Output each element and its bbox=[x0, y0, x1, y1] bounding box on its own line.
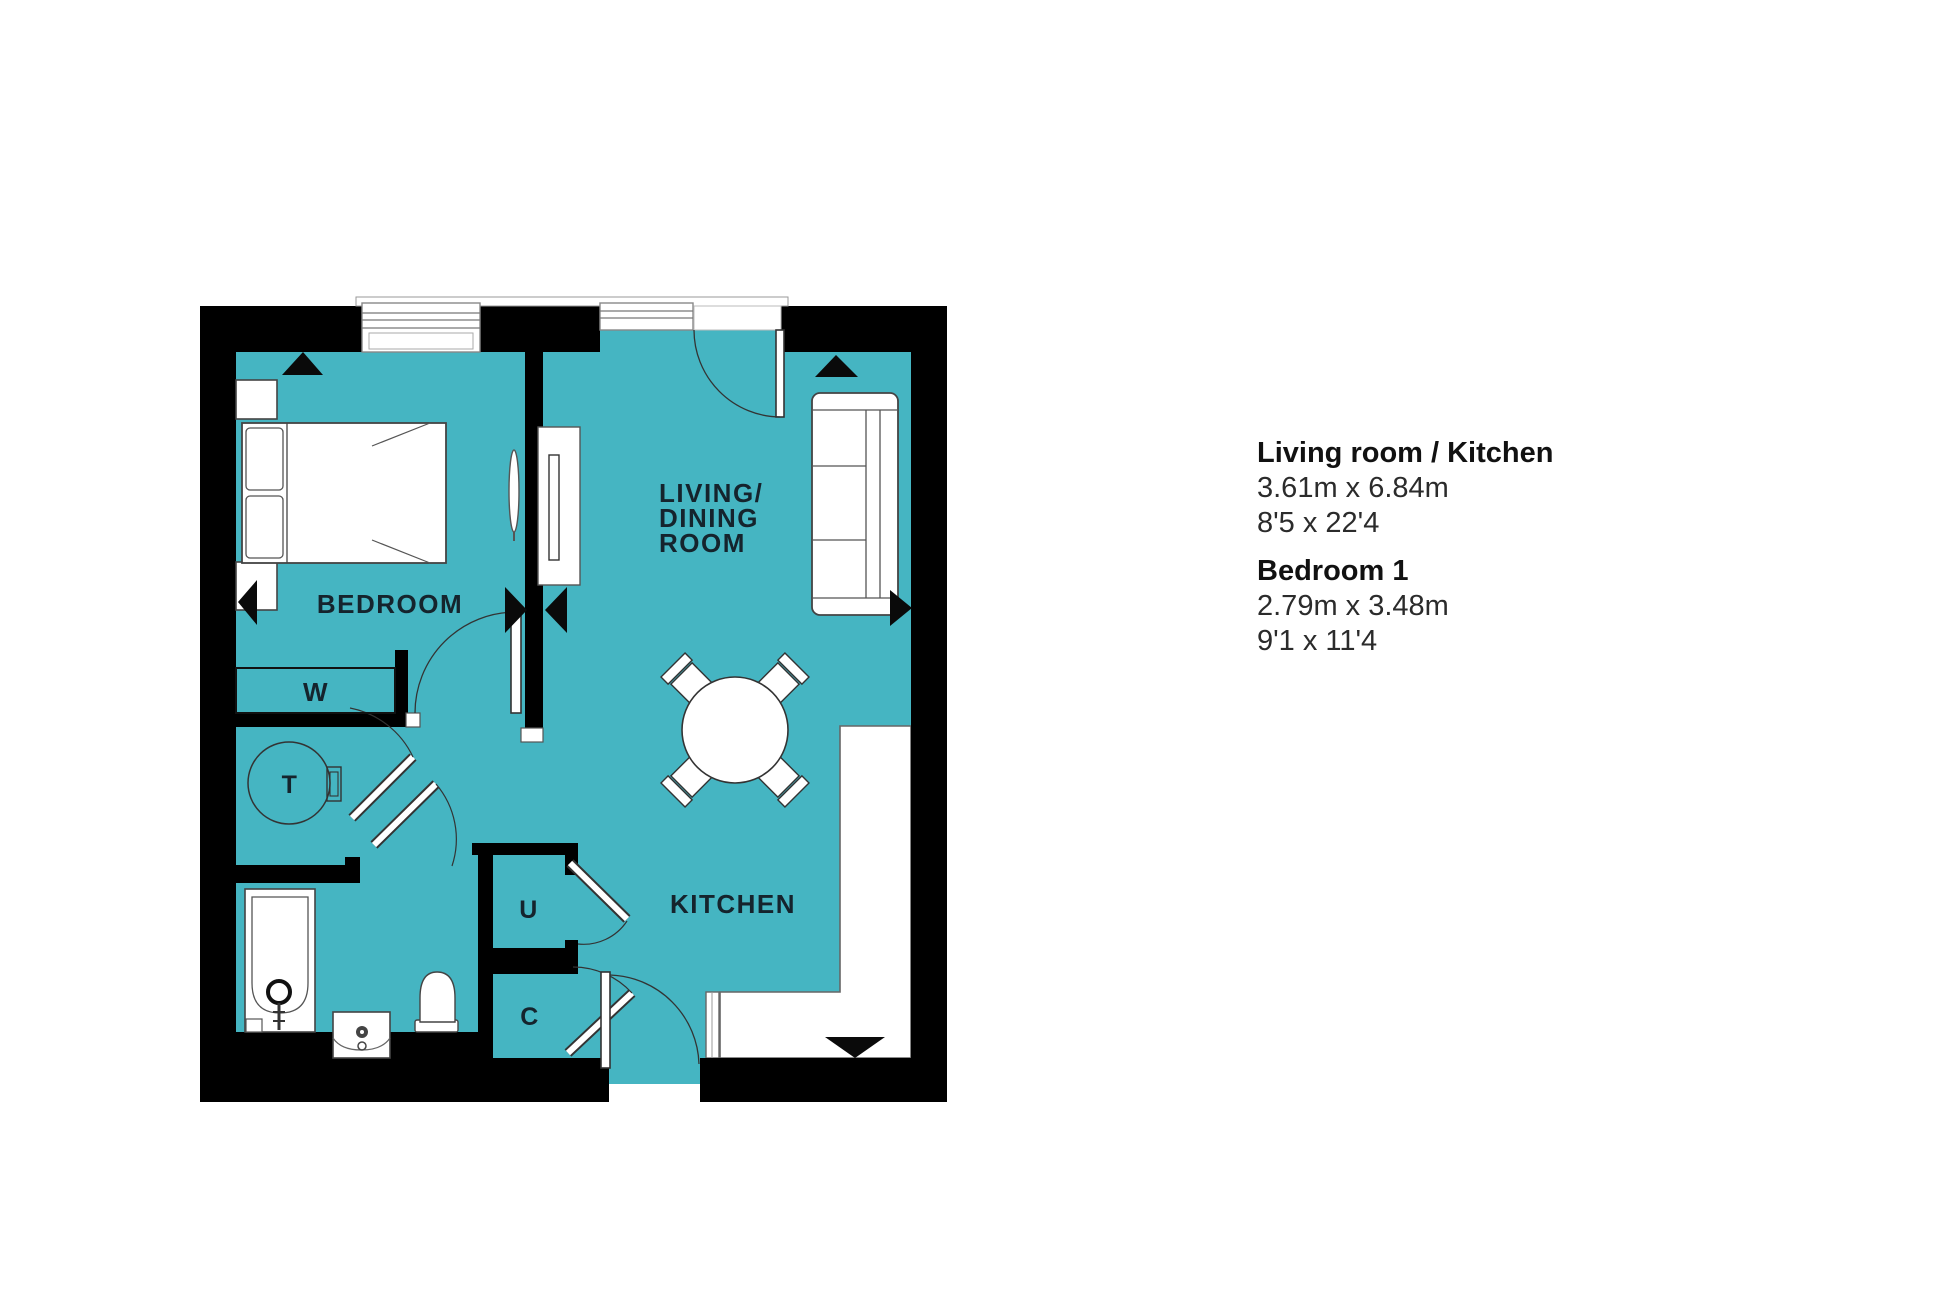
pillow bbox=[246, 428, 283, 490]
bedside-table bbox=[236, 380, 277, 419]
detail-bedroom-imperial: 9'1 x 11'4 bbox=[1257, 624, 1553, 659]
wall-bottom-mid bbox=[478, 1058, 609, 1102]
detail-bedroom-title: Bedroom 1 bbox=[1257, 554, 1553, 589]
detail-bedroom: Bedroom 1 2.79m x 3.48m 9'1 x 11'4 bbox=[1257, 554, 1553, 659]
dining-table-icon bbox=[682, 677, 788, 783]
page: BEDROOM LIVING/ DINING ROOM KITCHEN W T … bbox=[0, 0, 1942, 1294]
wall-bathroom-stub bbox=[345, 857, 360, 883]
pillow bbox=[246, 496, 283, 558]
room-details-panel: Living room / Kitchen 3.61m x 6.84m 8'5 … bbox=[1257, 436, 1553, 672]
bedroom-window-icon bbox=[362, 303, 480, 352]
detail-living-metric: 3.61m x 6.84m bbox=[1257, 471, 1553, 506]
detail-living-imperial: 8'5 x 22'4 bbox=[1257, 506, 1553, 541]
wall-closets-mid-stub bbox=[565, 940, 578, 974]
detail-bedroom-metric: 2.79m x 3.48m bbox=[1257, 589, 1553, 624]
cupboard-label: C bbox=[520, 1003, 540, 1031]
wall-closets-left bbox=[478, 843, 493, 1058]
living-label-line3: ROOM bbox=[659, 528, 746, 558]
kitchen-label: KITCHEN bbox=[670, 889, 796, 919]
living-window-icon bbox=[600, 303, 693, 330]
tv-icon bbox=[549, 455, 559, 560]
wall-left bbox=[200, 306, 236, 1102]
detail-living-title: Living room / Kitchen bbox=[1257, 436, 1553, 471]
tv-unit bbox=[538, 427, 580, 585]
wall-closets-top bbox=[472, 843, 578, 855]
sofa bbox=[812, 393, 898, 615]
bedroom-label: BEDROOM bbox=[317, 589, 463, 619]
floor-plan: BEDROOM LIVING/ DINING ROOM KITCHEN W T … bbox=[0, 0, 1942, 1294]
wardrobe-label: W bbox=[303, 677, 329, 707]
bathtub-icon bbox=[245, 889, 315, 1032]
wall-closets-mid bbox=[492, 948, 568, 974]
wall-bathroom bbox=[236, 865, 345, 883]
basin-icon bbox=[333, 1012, 390, 1058]
wall-below-wardrobe bbox=[236, 713, 408, 727]
wall-right bbox=[911, 306, 947, 1102]
wall-bottom-right bbox=[700, 1058, 947, 1102]
utility-label: U bbox=[519, 896, 539, 924]
t-label: T bbox=[282, 771, 299, 799]
detail-living: Living room / Kitchen 3.61m x 6.84m 8'5 … bbox=[1257, 436, 1553, 541]
